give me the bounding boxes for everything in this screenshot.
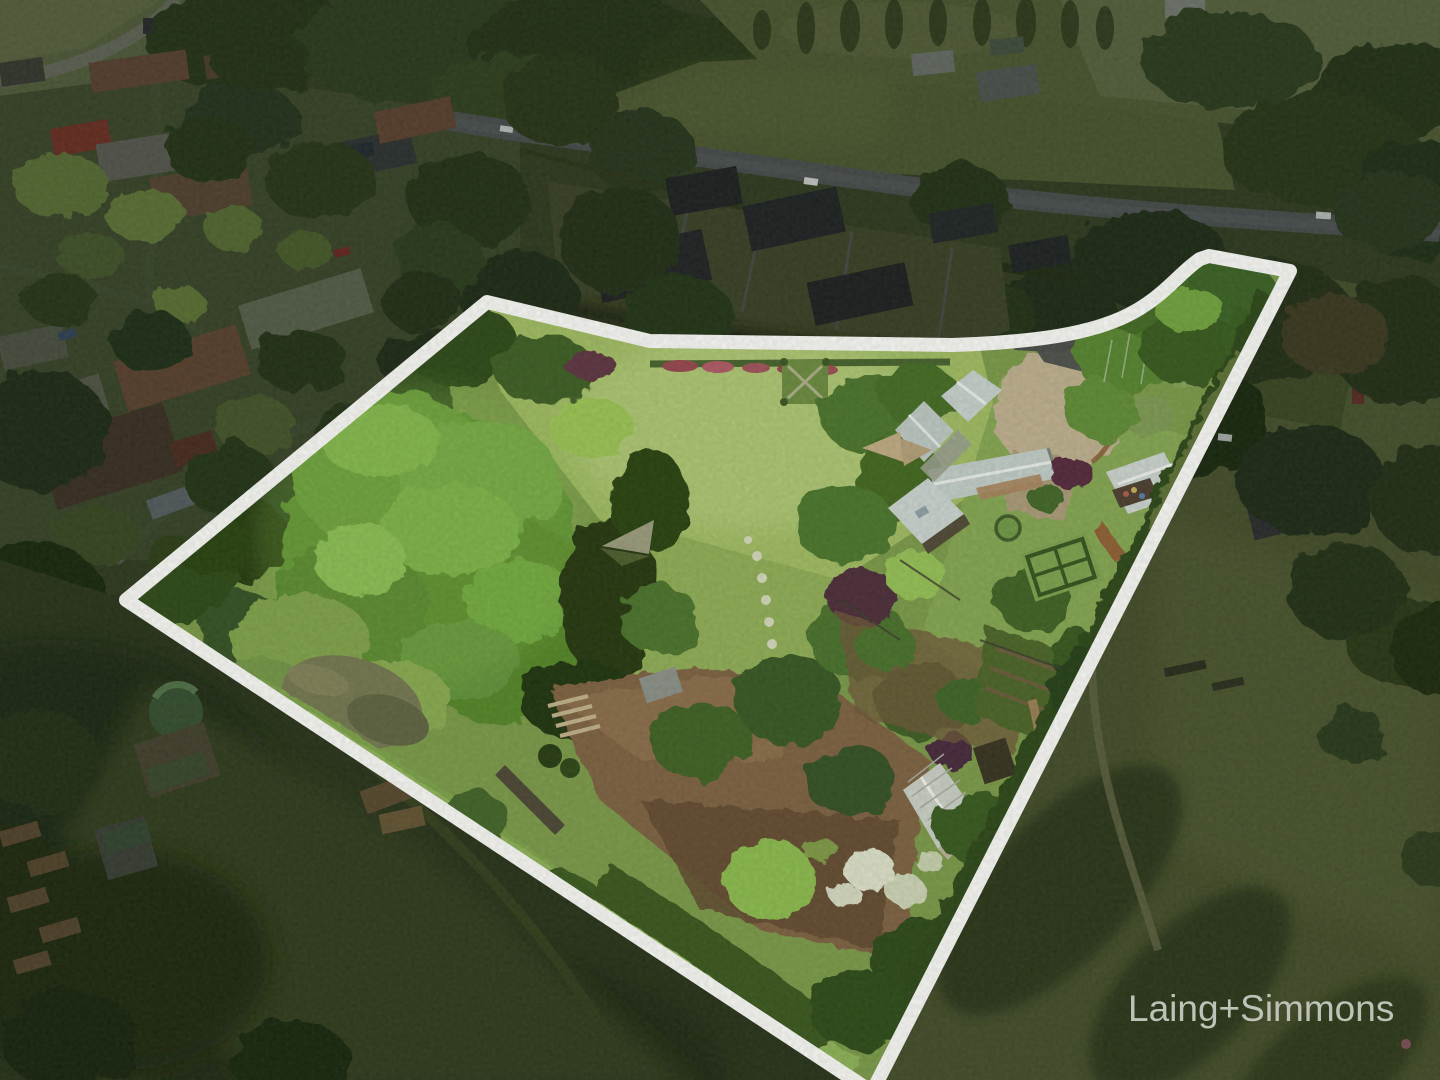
svg-text:Laing+Simmons: Laing+Simmons (1128, 988, 1394, 1029)
